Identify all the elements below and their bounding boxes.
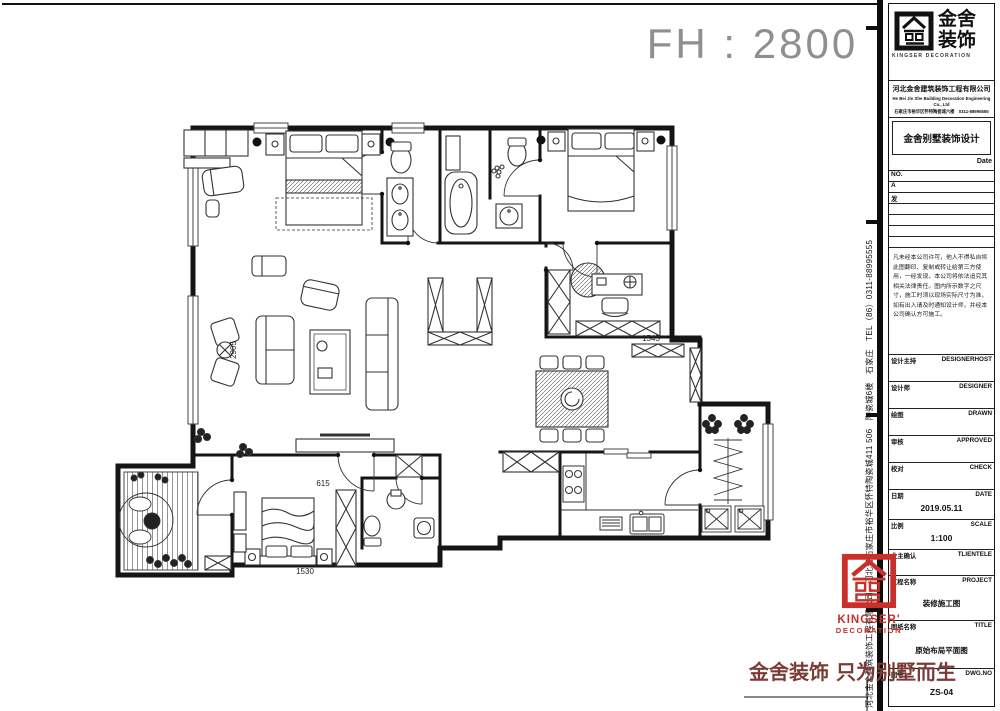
study-furniture (571, 263, 642, 317)
sheet-frame (2, 4, 877, 711)
brand-english: KINGSER DECORATION (892, 53, 992, 59)
brand-cn-line1: 金舍 (938, 9, 976, 30)
red-logo-text2: DECORATION (829, 626, 909, 635)
kingser-logo-black (894, 11, 934, 51)
field-check: 校对CHECK (889, 462, 994, 489)
brand-slogan: 金舍装饰 只为别墅而生 (749, 656, 956, 685)
dim-2905: 2905 (229, 341, 238, 359)
dim-615: 615 (316, 479, 330, 488)
field-approved: 审核APPROVED (889, 435, 994, 462)
binding-tick (869, 26, 878, 30)
date-header: Date (889, 158, 994, 171)
rev-blank (889, 237, 994, 248)
utility-balcony (702, 415, 764, 533)
field-scale: 比例SCALE 1:100 (889, 519, 994, 549)
floor-plan-drawing: 2905 1545 615 1530 (0, 0, 880, 711)
field-designerhost: 设计主持DESIGNERHOST (889, 354, 994, 381)
company-name-cn: 河北金舍建筑装饰工程有限公司 (889, 80, 994, 96)
rev-a: A (889, 182, 994, 193)
dim-1545: 1545 (642, 334, 660, 343)
binding-tick (869, 220, 878, 224)
rev-blank (889, 226, 994, 237)
villa-design-banner: 金舍别墅装饰设计 (892, 121, 991, 155)
company-name-en: He Bei Jin She Building Decoration Engin… (889, 96, 994, 118)
balcony-furniture (119, 472, 198, 570)
rev-blank (889, 215, 994, 226)
living-room-furniture (195, 279, 399, 458)
kitchen-fixtures (561, 453, 698, 534)
rev-fa: 发 (889, 193, 994, 204)
field-drawn: 绘图DRAWN (889, 408, 994, 435)
bedroom3-furniture (234, 492, 332, 565)
drawing-sheet: 2905 1545 615 1530 FH : 2800 河北金舍建筑装饰工程有… (0, 0, 1000, 711)
field-designer: 设计师DESIGNER (889, 381, 994, 408)
field-date: 日期DATE 2019.05.11 (889, 489, 994, 519)
brand-chinese: 金舍 装饰 (938, 9, 976, 51)
red-logo-text1: KINGSER' (829, 615, 909, 626)
bedroom2-furniture (537, 129, 666, 211)
title-block-logo-row: 金舍 装饰 KINGSER DECORATION (889, 4, 994, 80)
rev-blank (889, 204, 994, 215)
binding-tick (869, 413, 878, 417)
kingser-logo-red: KINGSER' DECORATION (829, 552, 909, 635)
brand-cn-line2: 装饰 (938, 30, 976, 51)
dim-1530: 1530 (296, 567, 314, 576)
edge-vertical-text: 河北金舍建筑装饰工程有限公司，河北省石家庄市裕华区怀特陶瓷城411 506 陶瓷… (864, 240, 875, 708)
dining-set (536, 356, 608, 442)
red-logo-mark (840, 552, 898, 610)
master-bedroom-furniture (184, 130, 395, 276)
rev-no: NO. (889, 171, 994, 182)
bath3-fixtures (364, 490, 434, 546)
disclaimer-text: 凡未经本公司许可，他人不得私自将此图翻印、复制或转让给第三方使用，一经发现，本公… (889, 248, 994, 354)
floor-height-label: FH : 2800 (645, 20, 860, 68)
